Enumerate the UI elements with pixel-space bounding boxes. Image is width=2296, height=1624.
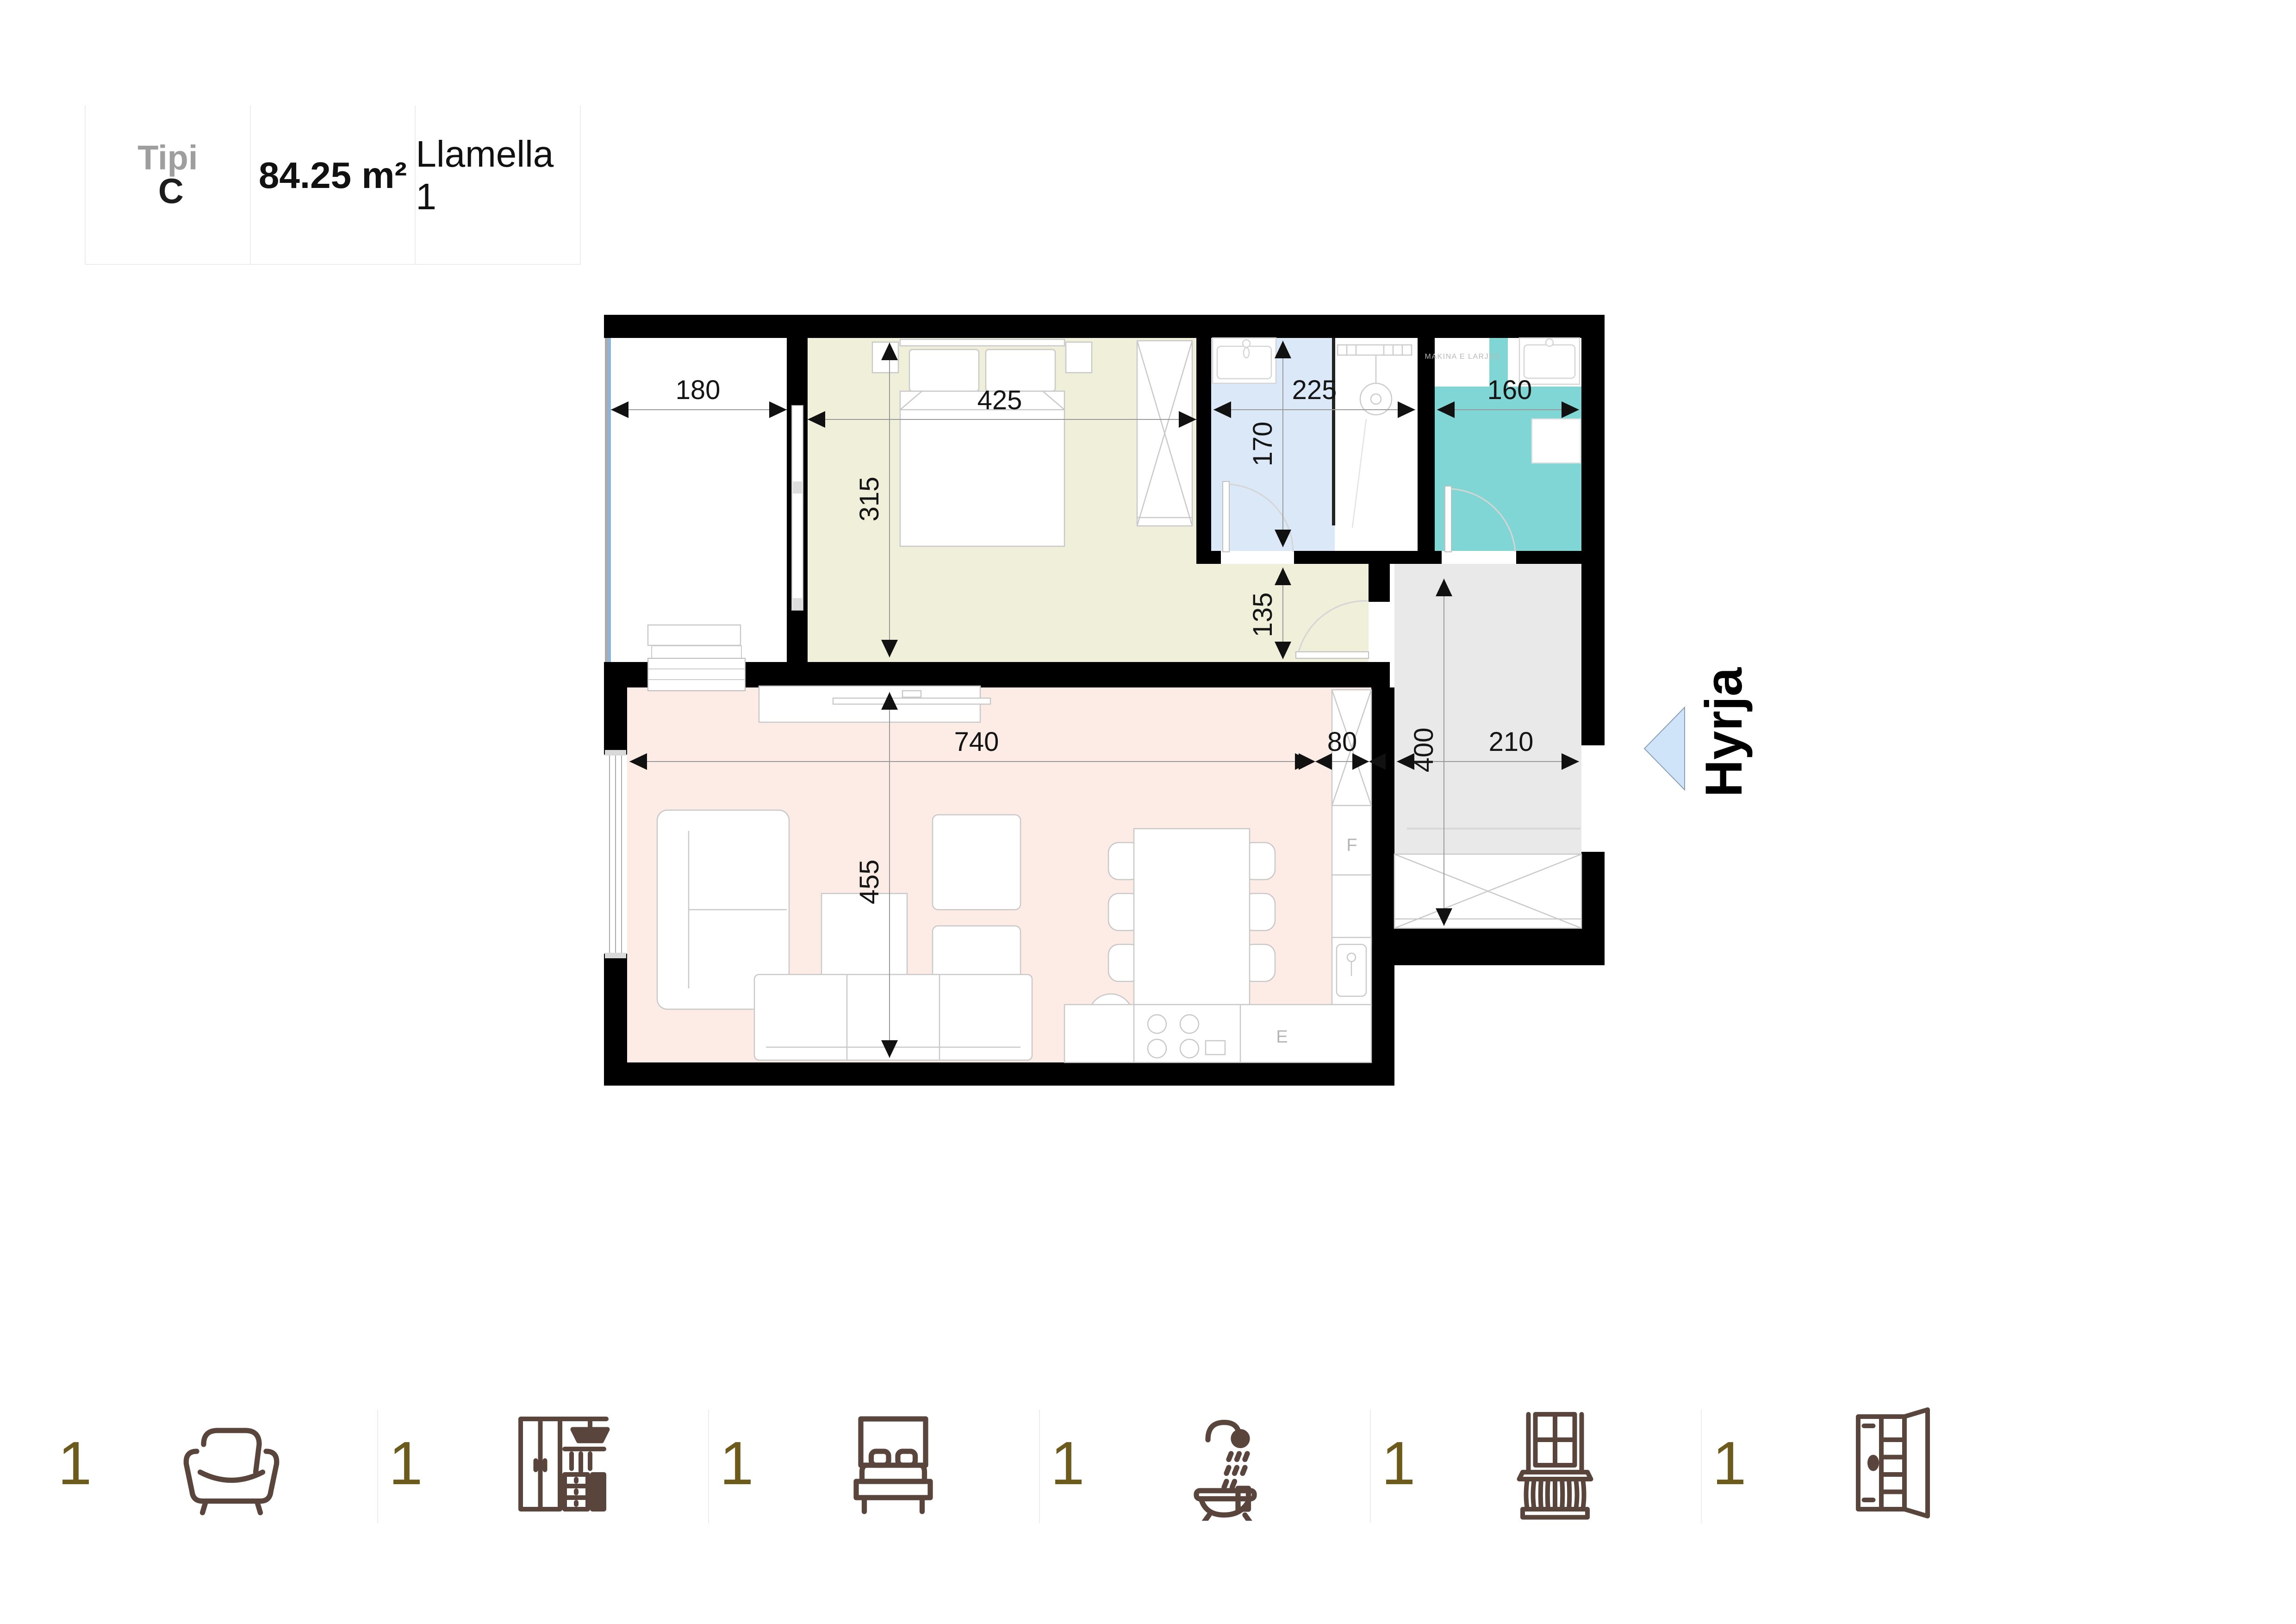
dim-hall-depth: 400 xyxy=(1409,728,1439,773)
dim-living-width: 740 xyxy=(954,727,999,757)
legend-item-balcony: 1 xyxy=(1370,1398,1701,1528)
furniture-legend: 1 1 xyxy=(0,1389,2296,1537)
bath-count: 1 xyxy=(1051,1428,1106,1498)
cabinet-count: 1 xyxy=(1712,1428,1768,1498)
legend-item-sofa: 1 xyxy=(46,1398,377,1528)
kitchen-cabinet-icon xyxy=(504,1405,620,1521)
legend-item-kitchen: 1 xyxy=(377,1398,708,1528)
cabinet-icon xyxy=(1828,1405,1944,1521)
entrance-marker: Hyrja xyxy=(1644,667,1753,797)
dim-laundry-width: 160 xyxy=(1487,375,1532,405)
laundry-door-leaf xyxy=(1445,486,1451,552)
wall-bedroom-bath xyxy=(1196,338,1211,551)
kitchen-count: 1 xyxy=(389,1428,444,1498)
stove-burner xyxy=(1148,1015,1166,1033)
tv xyxy=(833,698,990,704)
wall-corridor-hall-upper xyxy=(1369,564,1390,602)
balcony-bench xyxy=(648,625,740,645)
fridge-label: F xyxy=(1346,836,1357,855)
dim-bedroom-depth: 315 xyxy=(854,477,884,522)
wall-laundry-bottom xyxy=(1516,551,1581,564)
entrance-label: Hyrja xyxy=(1695,667,1753,797)
bathtub-icon xyxy=(1166,1405,1282,1521)
sofa-icon xyxy=(174,1405,289,1521)
legend-item-bed: 1 xyxy=(708,1398,1039,1528)
door-handle xyxy=(793,598,802,610)
bedroom-door-opening xyxy=(1369,602,1389,662)
bath-faucet-body xyxy=(1244,348,1249,358)
tv-base xyxy=(902,691,921,697)
stove-burner xyxy=(1148,1039,1166,1058)
window-end xyxy=(605,953,626,958)
balcony-glazing xyxy=(605,338,611,662)
armchair xyxy=(933,815,1020,910)
legend-item-cabinet: 1 xyxy=(1701,1398,2032,1528)
laundry-faucet xyxy=(1546,339,1553,346)
dining-table xyxy=(1134,829,1250,1005)
floor-plan-drawing: MAKINA E LARJES F E xyxy=(0,0,2296,1624)
stove-burner xyxy=(1180,1015,1199,1033)
laundry-toilet xyxy=(1532,419,1580,463)
laundry-sink xyxy=(1524,345,1575,378)
door-handle xyxy=(793,481,802,493)
dim-balcony-width: 180 xyxy=(676,375,721,405)
balcony-window xyxy=(648,658,745,691)
nightstand xyxy=(1066,342,1092,373)
legend-divider xyxy=(1039,1410,1040,1523)
dim-living-depth: 455 xyxy=(854,860,884,905)
bath-faucet xyxy=(1243,340,1250,347)
legend-divider xyxy=(708,1410,709,1523)
wall-bath-bottom-a xyxy=(1196,551,1221,564)
laundry-door-opening xyxy=(1443,552,1515,563)
glass-pane xyxy=(608,338,611,662)
bedroom-door-leaf xyxy=(1296,652,1369,658)
dim-corridor-depth: 135 xyxy=(1248,593,1278,637)
laundry-machine-label: MAKINA E LARJES xyxy=(1425,353,1500,361)
bed-headboard xyxy=(900,339,1064,346)
entrance-arrow-icon xyxy=(1644,707,1685,790)
sliding-door xyxy=(792,406,803,610)
bed-pillow xyxy=(909,350,979,391)
window-end xyxy=(605,750,626,756)
floor-plan-page: Tipi C 84.25 m² Llamella 1 xyxy=(0,0,2296,1624)
bed-count: 1 xyxy=(720,1428,775,1498)
dim-hall-width: 210 xyxy=(1489,727,1534,757)
dim-kitchen-niche: 80 xyxy=(1327,727,1357,757)
dim-bathroom-depth: 170 xyxy=(1248,422,1278,467)
stove-panel xyxy=(1206,1041,1225,1055)
glass-frame xyxy=(605,338,608,662)
wall-bottom xyxy=(604,1062,1394,1086)
sofa-count: 1 xyxy=(58,1428,113,1498)
wall-left-upper xyxy=(604,687,627,755)
wall-right-upper xyxy=(1581,338,1605,745)
stove-burner xyxy=(1180,1039,1199,1058)
shower-divider xyxy=(1332,338,1335,525)
wall-bath-laundry xyxy=(1418,338,1435,551)
shower-head-center xyxy=(1371,394,1381,404)
balcony-sill xyxy=(652,646,741,659)
wall-living-hall xyxy=(1371,687,1394,1062)
legend-item-bath: 1 xyxy=(1039,1398,1370,1528)
legend-divider xyxy=(1370,1410,1371,1523)
kitchen-cabinet xyxy=(1332,875,1371,944)
balcony-count: 1 xyxy=(1381,1428,1437,1498)
wall-top xyxy=(604,315,1605,338)
sink-faucet xyxy=(1347,953,1356,962)
hall-floor xyxy=(1394,564,1581,854)
stove-label: E xyxy=(1276,1027,1288,1047)
dim-bedroom-width: 425 xyxy=(977,385,1022,415)
bed-icon xyxy=(835,1405,951,1521)
wall-hall-bottom xyxy=(1369,928,1605,965)
bath-door-opening xyxy=(1222,552,1293,563)
bath-door-leaf xyxy=(1223,481,1229,552)
dim-bathroom-width: 225 xyxy=(1292,375,1337,405)
shower-rail xyxy=(1338,345,1412,355)
legend-divider xyxy=(1701,1410,1702,1523)
legend-divider xyxy=(377,1410,378,1523)
balcony-icon xyxy=(1497,1405,1613,1521)
wall-bath-bottom-b xyxy=(1294,551,1442,564)
